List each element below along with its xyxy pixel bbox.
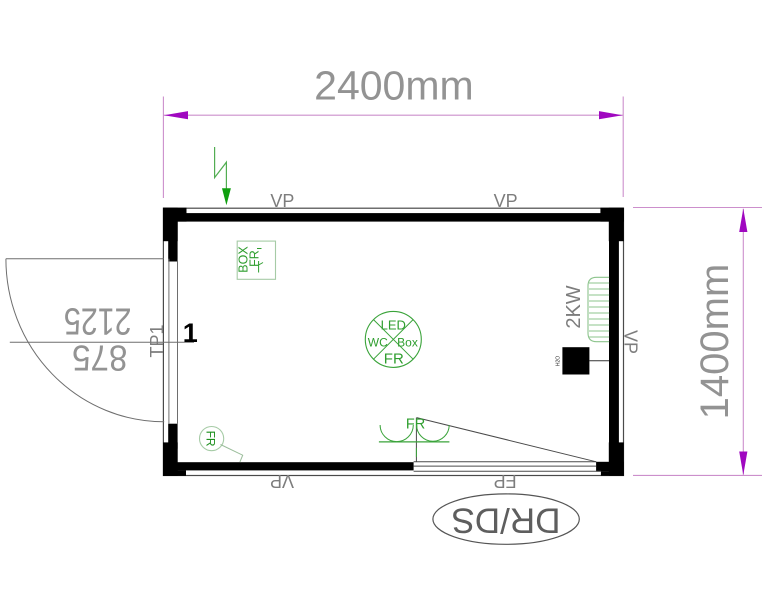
svg-text:VP: VP xyxy=(494,191,518,211)
svg-text:VP: VP xyxy=(270,471,294,491)
svg-text:VP: VP xyxy=(621,330,641,354)
svg-text:1400mm: 1400mm xyxy=(693,264,737,420)
svg-text:VP: VP xyxy=(270,191,294,211)
svg-text:2KW: 2KW xyxy=(563,285,585,328)
svg-text:FR: FR xyxy=(384,350,404,367)
svg-text:FR: FR xyxy=(406,417,425,433)
svg-text:1: 1 xyxy=(183,318,198,348)
svg-text:DR/DS: DR/DS xyxy=(452,501,561,540)
svg-text:Box: Box xyxy=(397,335,418,349)
svg-text:FR: FR xyxy=(204,431,218,447)
svg-text:2125: 2125 xyxy=(64,300,132,342)
svg-text:LED: LED xyxy=(381,317,406,332)
svg-text:FP: FP xyxy=(494,471,517,491)
svg-text:WC: WC xyxy=(368,335,388,349)
svg-text:H2O: H2O xyxy=(556,356,562,366)
svg-text:TP1: TP1 xyxy=(147,324,167,357)
svg-text:875: 875 xyxy=(72,337,127,377)
svg-text:2400mm: 2400mm xyxy=(314,62,474,108)
